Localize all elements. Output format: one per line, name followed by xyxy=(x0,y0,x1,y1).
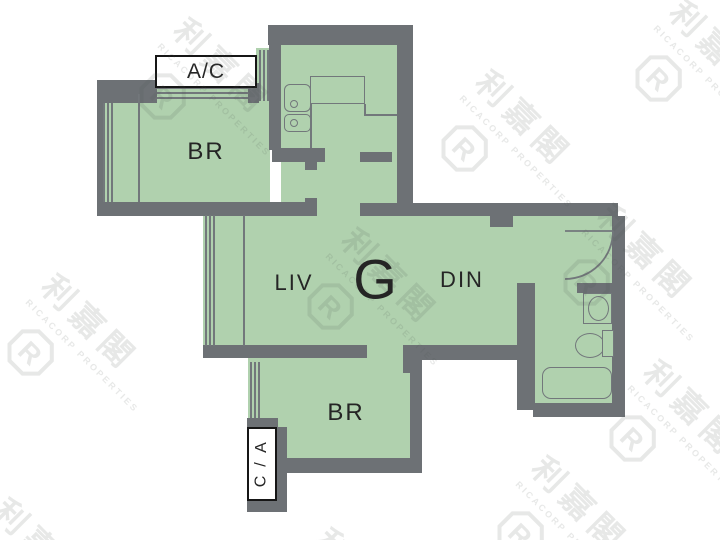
room-label-bedroom-bottom: BR xyxy=(327,399,364,427)
watermark-cjk-text: 利嘉閣 xyxy=(0,486,128,540)
floor-plan: A/C A/C BR LIV G DIN BR 利嘉閣 RICACORP PRO… xyxy=(0,0,720,540)
window-line xyxy=(254,362,256,418)
window-bay-inner-line xyxy=(138,94,140,202)
window-line xyxy=(259,50,261,101)
toilet-tank-icon xyxy=(602,330,614,357)
wall xyxy=(360,203,618,216)
wall xyxy=(397,45,413,203)
wall xyxy=(247,500,287,512)
watermark-cjk-text: 利嘉閣 xyxy=(522,444,666,540)
window-line xyxy=(250,362,252,418)
wall xyxy=(533,403,625,417)
stove-burner-icon xyxy=(290,119,298,127)
window-line xyxy=(157,92,248,94)
ac-unit-bottom: A/C xyxy=(247,427,277,501)
bathroom-sink-basin-icon xyxy=(588,296,609,321)
wall xyxy=(203,345,367,358)
watermark-cjk-text: 利嘉閣 xyxy=(634,348,720,492)
wall xyxy=(269,43,281,150)
watermark-logo-icon: R xyxy=(488,502,553,540)
floor-doorway-hall-living xyxy=(315,203,360,216)
watermark-cjk-text: 利嘉閣 xyxy=(306,516,450,540)
window-line xyxy=(107,103,109,202)
watermark: 利嘉閣 RICACORP PROPERTIES R xyxy=(0,486,128,540)
window-line xyxy=(205,215,207,346)
room-label-dining: DIN xyxy=(440,267,484,293)
window-line xyxy=(103,103,105,202)
kitchen-counter-line xyxy=(364,114,397,116)
wall xyxy=(97,80,157,103)
svg-text:R: R xyxy=(640,61,676,97)
wall xyxy=(305,162,317,170)
watermark-eng-text: RICACORP PROPERTIES xyxy=(0,521,93,540)
window-line xyxy=(263,50,265,101)
svg-text:R: R xyxy=(446,131,482,167)
svg-text:R: R xyxy=(502,517,538,540)
wall xyxy=(305,198,317,203)
svg-text:R: R xyxy=(12,335,48,371)
kitchen-stove-unit xyxy=(284,114,311,132)
watermark-logo-icon: R xyxy=(0,320,63,385)
watermark-eng-text: RICACORP PROPERTIES xyxy=(652,23,720,140)
window-line xyxy=(209,215,211,346)
wall xyxy=(97,202,317,216)
watermark-logo-icon: R xyxy=(626,46,691,111)
wall xyxy=(268,25,413,45)
ac-label-vertical: A/C xyxy=(256,439,268,490)
wall xyxy=(360,152,392,162)
watermark-eng-text: RICACORP PROPERTIES xyxy=(514,479,631,540)
watermark-cjk-text: 利嘉閣 xyxy=(660,0,720,132)
ac-unit-top: A/C xyxy=(155,55,257,88)
kitchen-counter xyxy=(310,76,365,104)
wall xyxy=(517,283,535,410)
watermark: 利嘉閣 RICACORP PROPERTIES R xyxy=(477,444,666,540)
wall xyxy=(410,373,422,458)
watermark-eng-text: RICACORP PROPERTIES xyxy=(458,93,575,210)
entrance-door-swing-icon xyxy=(555,225,621,287)
watermark: 利嘉閣 RICACORP PROPERTIES R xyxy=(615,0,720,177)
toilet-bowl-icon xyxy=(575,333,605,358)
window-line xyxy=(258,362,260,418)
svg-text:R: R xyxy=(614,421,650,457)
floor-doorway-bedroom-bottom xyxy=(367,345,403,358)
ac-label: A/C xyxy=(187,60,225,84)
watermark: 利嘉閣 RICACORP PROPERTIES R xyxy=(261,516,450,540)
room-label-bedroom-top: BR xyxy=(187,138,224,166)
window-line xyxy=(111,103,113,202)
window-line xyxy=(267,50,269,101)
floor-hall xyxy=(281,155,397,203)
window-line xyxy=(213,215,215,346)
wall xyxy=(272,148,325,162)
wall xyxy=(278,458,422,473)
watermark-cjk-text: 利嘉閣 xyxy=(466,58,610,202)
watermark: 利嘉閣 RICACORP PROPERTIES R xyxy=(0,262,176,451)
room-label-living: LIV xyxy=(274,270,313,296)
kitchen-counter-line xyxy=(310,104,312,148)
sink-basin-icon xyxy=(290,100,298,108)
wall xyxy=(403,345,422,373)
watermark-eng-text: RICACORP PROPERTIES xyxy=(24,297,141,414)
bathtub xyxy=(542,367,612,399)
watermark-logo-icon: R xyxy=(432,116,497,181)
window-bay-inner-line xyxy=(243,215,245,346)
wall xyxy=(490,216,513,227)
unit-label: G xyxy=(353,247,397,312)
kitchen-sink-unit xyxy=(284,84,311,112)
window-line xyxy=(157,97,248,99)
watermark-cjk-text: 利嘉閣 xyxy=(32,262,176,406)
watermark-eng-text: RICACORP PROPERTIES xyxy=(626,383,720,500)
